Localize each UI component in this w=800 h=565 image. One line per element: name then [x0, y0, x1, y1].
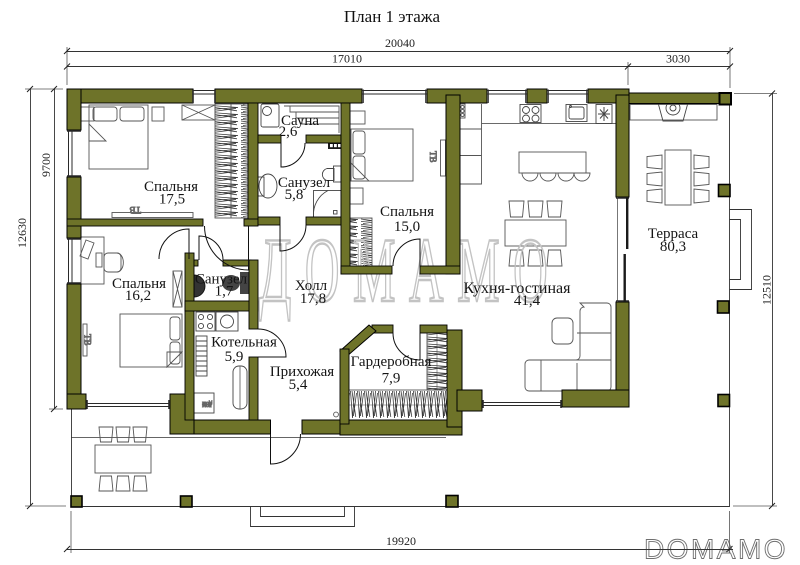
svg-text:12510: 12510 [760, 275, 774, 305]
svg-text:Котельная: Котельная [211, 335, 277, 351]
svg-text:Гардеробная: Гардеробная [351, 354, 432, 370]
svg-text:20040: 20040 [385, 36, 415, 50]
svg-text:5,9: 5,9 [225, 349, 244, 365]
svg-text:5,4: 5,4 [289, 377, 308, 393]
svg-text:5,8: 5,8 [285, 187, 304, 203]
svg-text:19920: 19920 [386, 534, 416, 548]
svg-text:ТВ: ТВ [83, 334, 93, 346]
svg-text:9700: 9700 [39, 153, 53, 177]
svg-text:План 1 этажа: План 1 этажа [344, 7, 441, 26]
svg-text:15,0: 15,0 [394, 219, 420, 235]
svg-text:ТВ: ТВ [428, 151, 438, 163]
svg-text:12630: 12630 [15, 218, 29, 248]
svg-text:3030: 3030 [666, 52, 690, 66]
svg-text:17,8: 17,8 [300, 291, 326, 307]
svg-text:16,2: 16,2 [125, 288, 151, 304]
svg-text:7,9: 7,9 [382, 371, 401, 387]
svg-text:дом: дом [202, 402, 212, 408]
svg-text:1,7: 1,7 [215, 284, 234, 300]
svg-text:DOMAMO: DOMAMO [644, 534, 788, 565]
svg-text:Спальня: Спальня [380, 204, 434, 220]
svg-text:41,4: 41,4 [514, 293, 541, 309]
svg-text:ТВ: ТВ [129, 205, 141, 215]
svg-text:80,3: 80,3 [660, 239, 686, 255]
svg-text:2,6: 2,6 [279, 124, 298, 140]
svg-text:17010: 17010 [332, 52, 362, 66]
svg-text:17,5: 17,5 [159, 192, 185, 208]
